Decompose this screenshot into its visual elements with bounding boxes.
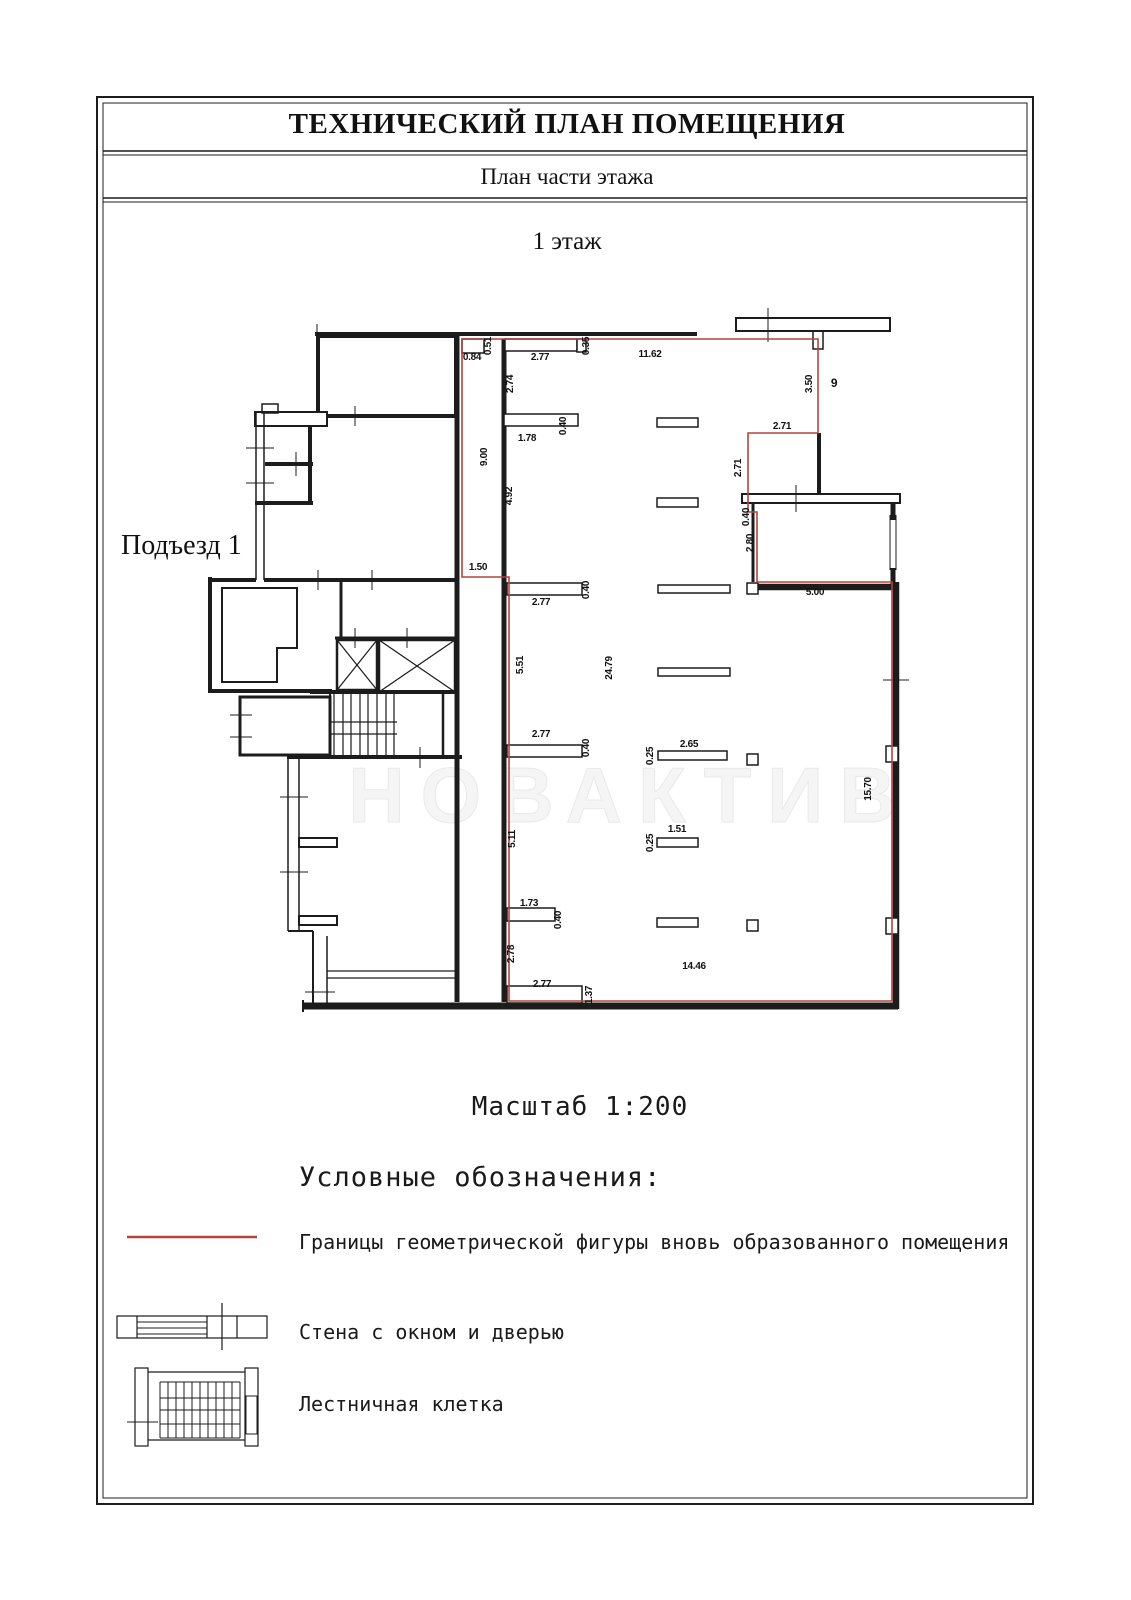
legend-wall-window-door-symbol (117, 1303, 267, 1350)
floor-plan-walls (210, 308, 909, 1012)
dimension-label: 5.00 (806, 587, 825, 598)
dimension-label: 0.25 (645, 833, 656, 852)
legend-item-staircase-label: Лестничная клетка (299, 1392, 504, 1416)
dimension-label: 2.71 (733, 458, 744, 477)
dimension-label: 0.51 (483, 336, 494, 355)
entrance-label: Подъезд 1 (121, 530, 242, 562)
page-subtitle: План части этажа (103, 164, 1031, 190)
dimension-label: 3.50 (804, 374, 815, 393)
legend-title: Условные обозначения: (299, 1162, 661, 1193)
dimension-label: 1.73 (520, 898, 539, 909)
dimension-label: 2.80 (745, 533, 756, 552)
dimension-label: 0.40 (558, 416, 569, 435)
dimension-label: 5.51 (515, 655, 526, 674)
legend-staircase-symbol (127, 1368, 258, 1446)
legend-item-boundary-label: Границы геометрической фигуры вновь обра… (299, 1230, 1009, 1254)
scale-label: Масштаб 1:200 (420, 1092, 740, 1122)
page-title: ТЕХНИЧЕСКИЙ ПЛАН ПОМЕЩЕНИЯ (103, 108, 1031, 141)
dimension-label: 11.62 (639, 349, 663, 360)
dimension-label: 9.00 (479, 447, 490, 466)
dimension-label: 2.71 (773, 421, 792, 432)
dimension-label: 24.79 (604, 656, 615, 680)
dimension-label: 2.74 (505, 374, 516, 393)
dimension-label: 2.77 (532, 597, 551, 608)
dimension-label: 0.25 (645, 746, 656, 765)
dimension-label: 2.78 (506, 944, 517, 963)
dimension-label: 0.40 (553, 910, 564, 929)
floor-label: 1 этаж (103, 228, 1031, 256)
dimension-label: 0.40 (741, 507, 752, 526)
dimension-label: 4.92 (504, 486, 515, 505)
dimension-label: 5.11 (507, 829, 518, 847)
dimension-label: 1.50 (469, 562, 488, 573)
dimension-label: 0.35 (581, 336, 592, 355)
dimension-label: 1.37 (584, 985, 595, 1004)
dimension-label: 2.77 (532, 729, 551, 740)
dimension-label: 2.65 (680, 739, 699, 750)
dimension-label: 2.77 (531, 352, 550, 363)
dimension-label: 1.78 (518, 433, 537, 444)
dimension-label: 0.84 (463, 352, 482, 363)
technical-plan-page: НОВАКТИВ (0, 0, 1131, 1600)
dimension-label: 0.40 (581, 738, 592, 757)
dimension-label: 15.70 (863, 777, 874, 801)
dimension-label: 14.46 (682, 961, 706, 972)
room-number-label: 9 (831, 376, 838, 390)
legend-item-wall-label: Стена с окном и дверью (299, 1320, 564, 1344)
dimension-label: 2.77 (533, 979, 552, 990)
dimension-label: 1.51 (668, 824, 687, 835)
dimension-label: 0.40 (581, 580, 592, 599)
watermark: НОВАКТИВ (348, 751, 911, 839)
